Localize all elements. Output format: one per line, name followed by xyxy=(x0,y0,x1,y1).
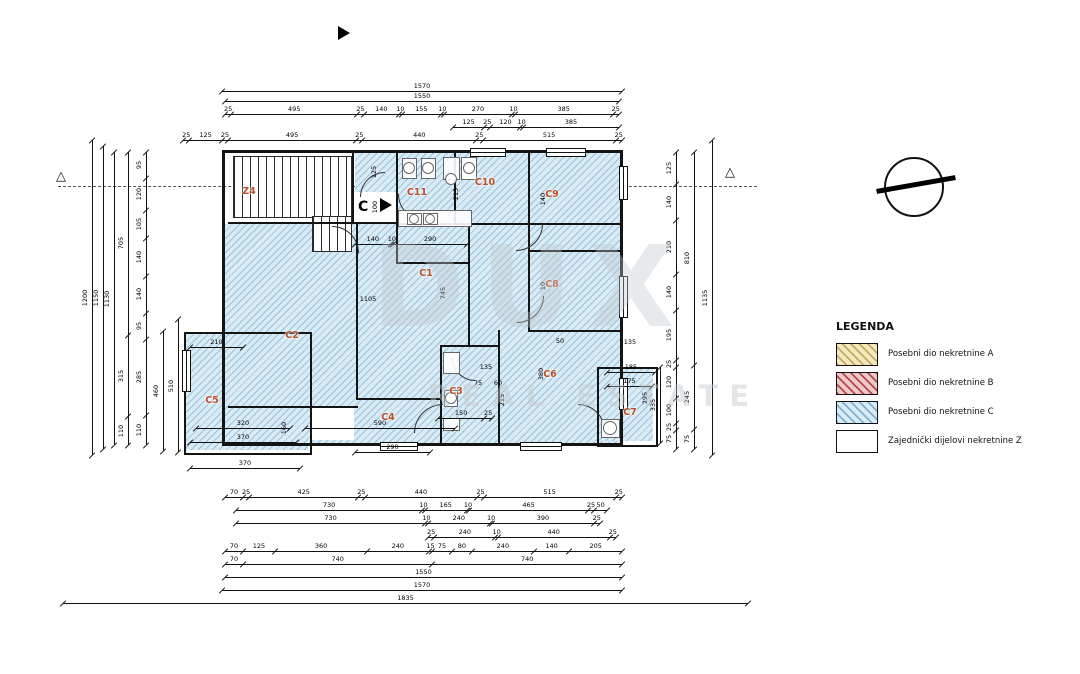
dim-tick xyxy=(100,446,106,452)
dim-line xyxy=(146,152,147,445)
dim-line xyxy=(190,468,300,469)
dim-tick xyxy=(673,446,679,452)
dim-value: 75 xyxy=(683,424,691,454)
dim-line xyxy=(190,442,296,443)
dim-value: 10 xyxy=(428,105,456,113)
dim-text: 135 xyxy=(472,363,500,371)
dim-value: 10 xyxy=(412,514,440,522)
dim-value: 210 xyxy=(203,338,231,346)
dim-value: 440 xyxy=(407,488,435,496)
dim-line xyxy=(183,140,622,141)
dim-text: 160 xyxy=(280,414,288,442)
dim-line xyxy=(607,372,655,373)
dim-line xyxy=(453,127,619,128)
dim-value: 385 xyxy=(557,118,585,126)
dim-value: 360 xyxy=(307,542,335,550)
dim-text: 125 xyxy=(370,158,378,186)
dim-value: 240 xyxy=(489,542,517,550)
dim-line xyxy=(428,537,616,538)
legend-swatch-a xyxy=(836,343,878,366)
dim-value: 370 xyxy=(229,433,257,441)
dim-value: 25 xyxy=(602,105,630,113)
window-mark xyxy=(520,442,562,451)
fixture-bowl xyxy=(422,162,434,174)
dim-value: 110 xyxy=(135,415,143,445)
dim-line xyxy=(225,564,622,565)
dim-value: 465 xyxy=(515,501,543,509)
dim-value: 120 xyxy=(135,179,143,209)
dim-line xyxy=(190,347,243,348)
dim-tick xyxy=(175,449,181,455)
dim-tick xyxy=(160,448,166,454)
dim-line xyxy=(222,590,622,591)
dim-line xyxy=(225,551,622,552)
room-label-c11: C11 xyxy=(402,187,432,198)
legend-row-z: Zajednički dijelovi nekretnine Z xyxy=(836,430,1056,452)
dim-value: 1570 xyxy=(408,82,436,90)
room-label-c2: C2 xyxy=(277,330,307,341)
dim-value: 25 xyxy=(583,514,611,522)
dim-value: 740 xyxy=(324,555,352,563)
dim-value: 25 xyxy=(599,528,627,536)
dim-value: 460 xyxy=(152,376,160,406)
dim-value: 10 xyxy=(477,514,505,522)
dim-tick xyxy=(709,452,715,458)
floor-plan-sheet: 1570155025495251401015510270103852512525… xyxy=(0,0,1080,674)
dim-value: 10 xyxy=(483,528,511,536)
legend-row-b: Posebni dio nekretnine B xyxy=(836,372,1056,394)
dim-tick xyxy=(691,446,697,452)
dim-value: 320 xyxy=(229,419,257,427)
dim-value: 25 xyxy=(605,131,633,139)
dim-chain-h: 210 xyxy=(190,337,243,357)
dim-value: 1550 xyxy=(408,92,436,100)
dim-value: 25 xyxy=(232,488,260,496)
dim-line xyxy=(196,428,290,429)
dim-value: 705 xyxy=(117,228,125,258)
legend-label-c: Posebni dio nekretnine C xyxy=(888,407,994,417)
room-label-z4: Z4 xyxy=(234,186,264,197)
dim-value: 25 xyxy=(466,488,494,496)
room-label-c9: C9 xyxy=(537,189,567,200)
dim-value: 290 xyxy=(379,443,407,451)
dim-text: 215 xyxy=(452,180,460,208)
room-label-c4: C4 xyxy=(373,412,403,423)
dim-value: 140 xyxy=(135,279,143,309)
dim-value: 1200 xyxy=(81,283,89,313)
legend-swatch-b xyxy=(836,372,878,395)
legend-label-b: Posebni dio nekretnine B xyxy=(888,378,994,388)
dim-value: 440 xyxy=(540,528,568,536)
dim-value: 240 xyxy=(384,542,412,550)
dim-line xyxy=(305,428,455,429)
dim-value: 50 xyxy=(587,501,615,509)
dim-line xyxy=(63,603,748,604)
dim-value: 240 xyxy=(445,514,473,522)
fixture-bowl xyxy=(403,162,415,174)
dim-value: 515 xyxy=(536,488,564,496)
fixture-bowl xyxy=(463,162,475,174)
dim-value: 10 xyxy=(454,501,482,509)
dim-tick xyxy=(657,440,663,446)
dim-chain-h: 370 xyxy=(190,458,300,478)
dim-value: 1130 xyxy=(103,284,111,314)
dim-line xyxy=(236,523,600,524)
dim-value: 495 xyxy=(280,105,308,113)
dim-value: 1835 xyxy=(392,594,420,602)
dim-value: 495 xyxy=(278,131,306,139)
dim-value: 140 xyxy=(665,187,673,217)
legend-row-a: Posebni dio nekretnine A xyxy=(836,343,1056,365)
dim-tick xyxy=(89,452,95,458)
dim-value: 25 xyxy=(605,488,633,496)
dim-value: 1150 xyxy=(92,283,100,313)
dim-line xyxy=(114,152,115,445)
legend-swatch-z xyxy=(836,430,878,453)
dim-value: 370 xyxy=(231,459,259,467)
dim-value: 270 xyxy=(464,105,492,113)
wall xyxy=(352,150,354,224)
dim-value: 25 xyxy=(465,131,493,139)
legend-row-c: Posebni dio nekretnine C xyxy=(836,401,1056,423)
dim-line xyxy=(128,152,129,445)
legend: LEGENDA Posebni dio nekretnine A Posebni… xyxy=(836,320,1056,459)
dim-chain-h: 1835 xyxy=(63,593,748,613)
dim-value: 95 xyxy=(135,311,143,341)
section-arrow-icon xyxy=(380,198,392,212)
dim-value: 315 xyxy=(117,361,125,391)
dim-value: 1135 xyxy=(701,283,709,313)
dim-value: 510 xyxy=(167,371,175,401)
dim-chain-h: 290 xyxy=(355,442,430,462)
legend-swatch-c xyxy=(836,401,878,424)
dim-value: 740 xyxy=(513,555,541,563)
dim-value: 240 xyxy=(451,528,479,536)
legend-label-z: Zajednički dijelovi nekretnine Z xyxy=(888,436,1022,446)
dim-value: 95 xyxy=(135,150,143,180)
dim-value: 385 xyxy=(550,105,578,113)
dim-value: 10 xyxy=(508,118,536,126)
dim-line xyxy=(225,114,619,115)
dim-value: 425 xyxy=(290,488,318,496)
dim-line xyxy=(163,331,164,451)
dim-value: 140 xyxy=(538,542,566,550)
dim-value: 390 xyxy=(529,514,557,522)
dim-value: 25 xyxy=(417,528,445,536)
dim-chain-v: 510 xyxy=(168,319,188,452)
room-label-c10: C10 xyxy=(470,177,500,188)
dim-line xyxy=(178,319,179,452)
dim-value: 80 xyxy=(448,542,476,550)
watermark-text: DUX xyxy=(372,232,690,344)
dim-value: 25 xyxy=(214,105,242,113)
dim-value: 10 xyxy=(500,105,528,113)
dim-value: 140 xyxy=(135,242,143,272)
dim-value: 285 xyxy=(135,362,143,392)
dim-value: 515 xyxy=(535,131,563,139)
dim-value: 110 xyxy=(117,416,125,446)
dim-value: 105 xyxy=(135,209,143,239)
dim-value: 25 xyxy=(347,488,375,496)
dim-value: 1570 xyxy=(408,581,436,589)
dim-value: 125 xyxy=(665,153,673,183)
dim-tick xyxy=(143,442,149,448)
room-label-c5: C5 xyxy=(197,395,227,406)
dim-chain-h: 2512525495254402551525 xyxy=(183,130,622,150)
dim-value: 25 xyxy=(211,131,239,139)
dim-line xyxy=(355,452,430,453)
dim-line xyxy=(225,101,619,102)
dim-value: 205 xyxy=(582,542,610,550)
elevation-marker-left-icon: △ xyxy=(56,170,66,183)
window-mark xyxy=(619,166,628,200)
legend-title: LEGENDA xyxy=(836,320,1056,333)
dim-line xyxy=(225,577,622,578)
section-arrow-top-icon xyxy=(338,26,350,40)
fixture-bowl xyxy=(603,421,617,435)
watermark-subtext: REAL ESTATE xyxy=(428,382,760,411)
fixture xyxy=(443,352,460,374)
dim-text: 100 xyxy=(371,193,379,221)
dim-value: 730 xyxy=(317,514,345,522)
section-label: C xyxy=(358,199,368,215)
dim-value: 125 xyxy=(245,542,273,550)
dim-value: 25 xyxy=(345,131,373,139)
dim-tick xyxy=(125,442,131,448)
elevation-marker-right-icon: △ xyxy=(725,166,735,179)
dim-value: 1550 xyxy=(410,568,438,576)
dim-value: 440 xyxy=(405,131,433,139)
dim-value: 730 xyxy=(315,501,343,509)
dim-value: 185 xyxy=(617,363,645,371)
legend-label-a: Posebni dio nekretnine A xyxy=(888,349,993,359)
dim-line xyxy=(225,497,622,498)
